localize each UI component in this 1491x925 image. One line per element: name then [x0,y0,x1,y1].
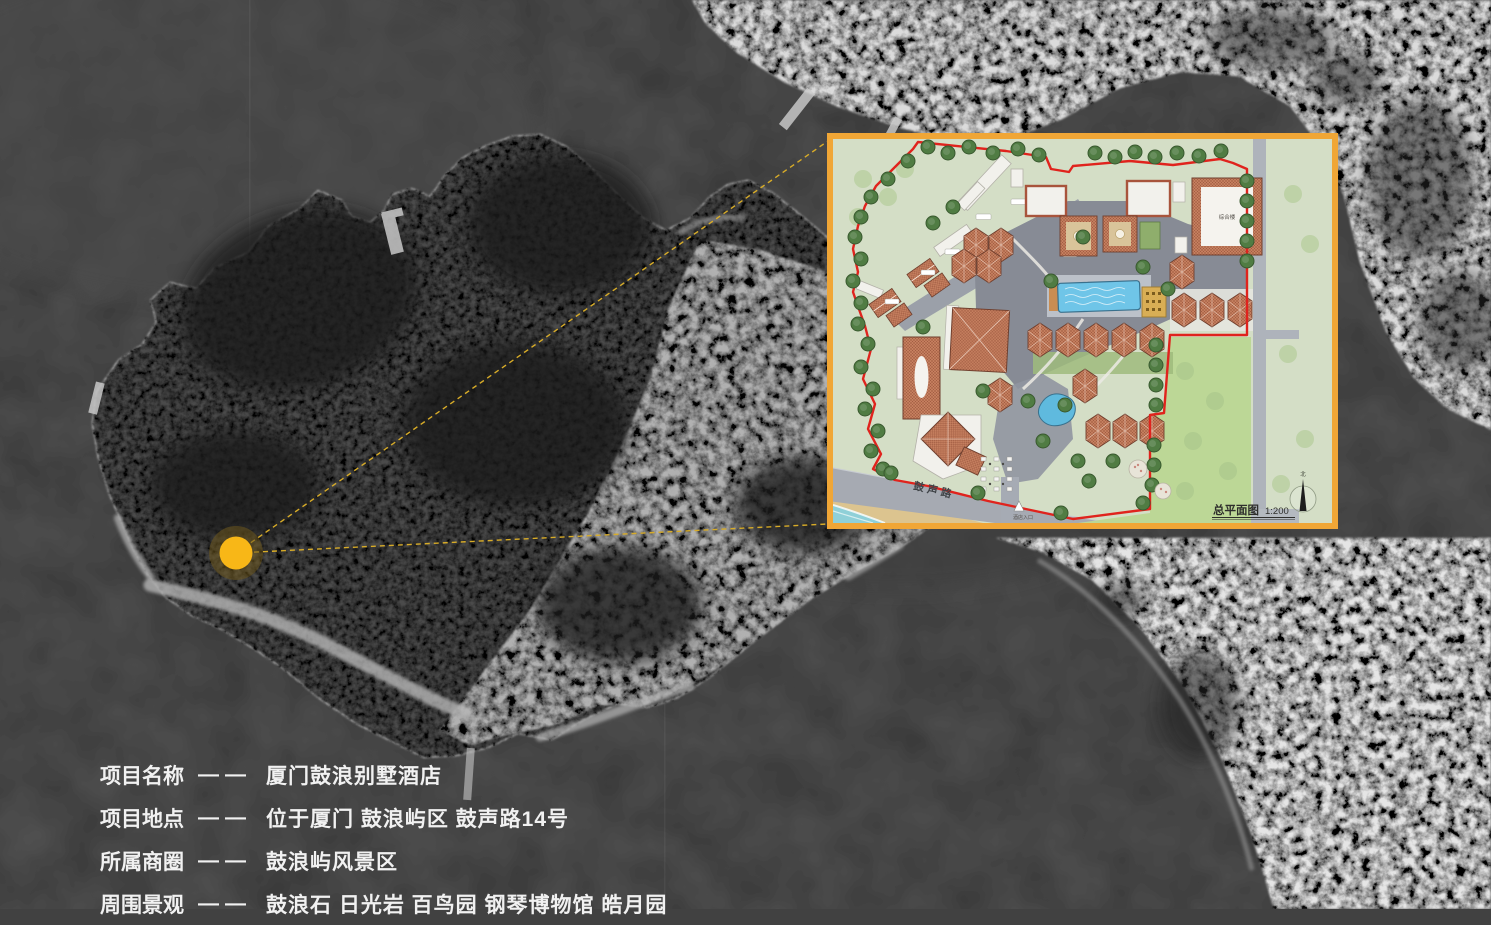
swimming-pool-area [1047,275,1151,317]
slide-canvas: 综合楼 [0,0,1491,909]
site-marker [209,526,263,580]
project-info-block: 项目名称 —— 厦门鼓浪别墅酒店 项目地点 —— 位于厦门 鼓浪屿区 鼓声路14… [100,753,667,925]
main-building-label: 综合楼 [1219,213,1236,221]
tall-guestroom-building [897,337,940,419]
info-value: 鼓浪屿风景区 [266,846,398,876]
plan-scale: 1:200 [1265,506,1289,517]
entrance-label: 酒店入口 [1013,514,1033,521]
swimming-pool [1058,281,1141,313]
info-row-project-name: 项目名称 —— 厦门鼓浪别墅酒店 [100,753,667,796]
info-label: 所属商圈 [100,846,188,876]
hedge-court [1140,222,1160,249]
info-value: 厦门鼓浪别墅酒店 [266,760,442,790]
site-plan-inset: 综合楼 [827,133,1338,529]
info-value: 位于厦门 鼓浪屿区 鼓声路14号 [266,803,569,833]
info-label: 项目名称 [100,760,188,790]
plan-title: 总平面图 [1213,503,1259,517]
performance-centre [943,305,1009,372]
info-value: 鼓浪石 日光岩 百鸟园 钢琴博物馆 皓月园 [266,889,667,919]
site-plan-drawing: 综合楼 [833,139,1332,523]
info-label: 项目地点 [100,803,188,833]
info-row-project-location: 项目地点 —— 位于厦门 鼓浪屿区 鼓声路14号 [100,796,667,839]
dash-separator: —— [198,849,252,873]
dash-separator: —— [198,763,252,787]
info-row-surrounding-sights: 周围景观 —— 鼓浪石 日光岩 百鸟园 钢琴博物馆 皓月园 [100,882,667,925]
dash-separator: —— [198,892,252,916]
dash-separator: —— [198,806,252,830]
marker-dot [220,537,253,570]
info-label: 周围景观 [100,889,188,919]
info-row-business-district: 所属商圈 —— 鼓浪屿风景区 [100,839,667,882]
north-label: 北 [1300,470,1306,478]
